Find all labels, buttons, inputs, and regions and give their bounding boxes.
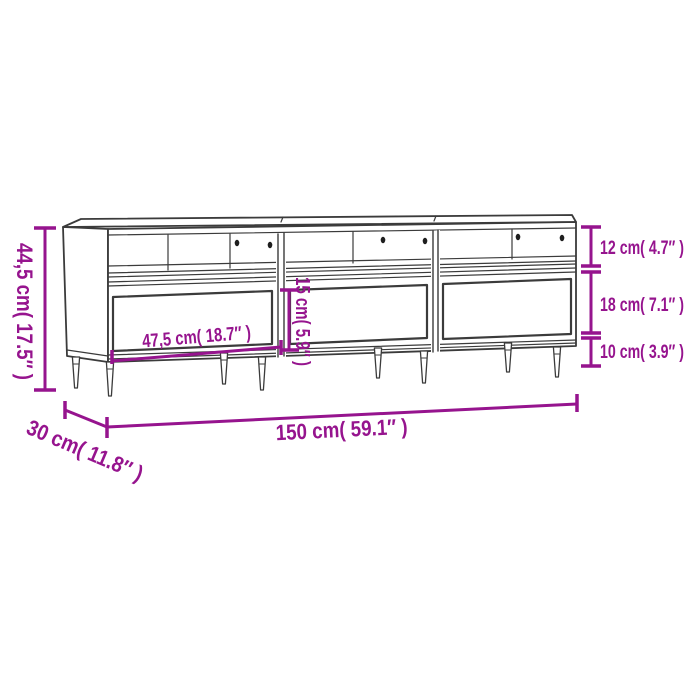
leg (220, 353, 227, 384)
dimension-overall-height: 44,5 cm( 17.5″ ) (12, 228, 56, 390)
drawer-section-height-label: 18 cm( 7.1″ ) (600, 295, 684, 316)
leg (374, 348, 381, 378)
top-compartment-height-label: 12 cm( 4.7″ ) (600, 238, 684, 259)
overall-width-label: 150 cm( 59.1″ ) (275, 414, 408, 445)
diagram-canvas: 44,5 cm( 17.5″ ) 47,5 cm( 18.7″ ) 15 cm(… (0, 0, 700, 700)
leg (258, 357, 265, 390)
leg (72, 357, 79, 388)
leg (504, 343, 511, 372)
cabinet-line-drawing (63, 215, 576, 396)
drawer-front-height-label: 15 cm( 5.9″ ) (291, 277, 313, 366)
leg-height-label: 10 cm( 3.9″ ) (600, 342, 684, 363)
leg (420, 351, 427, 383)
leg (553, 347, 560, 377)
leg (106, 362, 113, 396)
dimension-overall-depth: 30 cm( 11.8″ ) (23, 401, 147, 486)
dimension-drawer-section-height: 18 cm( 7.1″ ) (581, 272, 684, 333)
dimension-overall-width: 150 cm( 59.1″ ) (107, 394, 577, 445)
drawer-front-right (443, 279, 571, 339)
product-dimension-diagram: 44,5 cm( 17.5″ ) 47,5 cm( 18.7″ ) 15 cm(… (0, 0, 700, 700)
overall-height-label: 44,5 cm( 17.5″ ) (12, 243, 37, 380)
dimension-leg-height: 10 cm( 3.9″ ) (581, 338, 684, 366)
cabinet-side-panel (63, 227, 108, 362)
dimension-top-compartment-height: 12 cm( 4.7″ ) (581, 227, 684, 266)
